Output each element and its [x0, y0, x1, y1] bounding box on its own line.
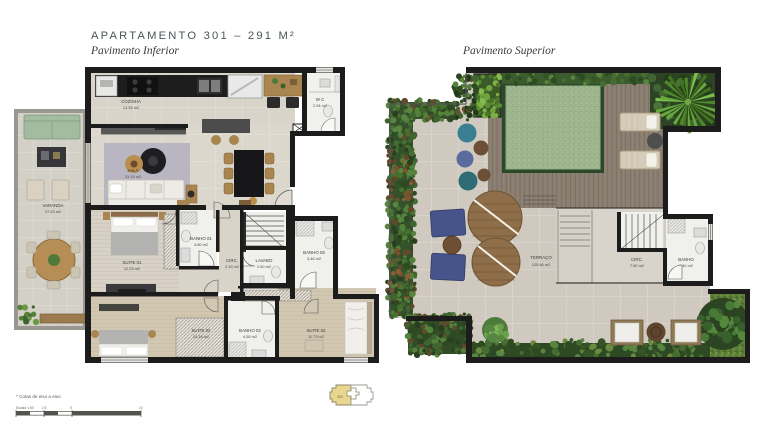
svg-text:2.5: 2.5 [42, 406, 47, 410]
svg-text:LAVABO: LAVABO [256, 258, 274, 263]
svg-text:SUITE 02: SUITE 02 [191, 328, 211, 333]
svg-text:SUITE 01: SUITE 01 [122, 260, 142, 265]
svg-text:12.25 m2: 12.25 m2 [124, 266, 140, 271]
svg-text:Escala 1:50: Escala 1:50 [16, 406, 34, 410]
svg-text:31.19 m2: 31.19 m2 [125, 174, 141, 179]
svg-text:2.60 m2: 2.60 m2 [257, 264, 271, 269]
svg-text:2.43 m2: 2.43 m2 [225, 264, 239, 269]
svg-text:BANHO 02: BANHO 02 [239, 328, 261, 333]
svg-text:2.94 m2: 2.94 m2 [313, 103, 327, 108]
svg-text:14.38 m2: 14.38 m2 [193, 334, 209, 339]
svg-text:125.46 m2: 125.46 m2 [532, 262, 550, 267]
svg-text:VARANDA: VARANDA [43, 203, 64, 208]
svg-text:Pavimento Superior: Pavimento Superior [462, 45, 556, 57]
svg-text:BANHO 01: BANHO 01 [190, 236, 212, 241]
svg-text:SUITE 03: SUITE 03 [306, 328, 326, 333]
svg-text:CIRC.: CIRC. [631, 257, 643, 262]
svg-text:3.80 m2: 3.80 m2 [194, 242, 208, 247]
svg-text:7.80 m2: 7.80 m2 [630, 263, 644, 268]
svg-text:Pavimento Inferior: Pavimento Inferior [90, 45, 179, 57]
svg-text:27.03 m2: 27.03 m2 [45, 209, 61, 214]
svg-text:TERRAÇO: TERRAÇO [530, 255, 552, 260]
svg-text:SALA: SALA [127, 168, 138, 173]
svg-text:13.35 m2: 13.35 m2 [123, 105, 139, 110]
svg-text:3.46 m2: 3.46 m2 [307, 256, 321, 261]
svg-text:11.73 m2: 11.73 m2 [308, 334, 324, 339]
svg-text:APARTAMENTO 301 – 291 M²: APARTAMENTO 301 – 291 M² [91, 30, 296, 42]
svg-text:5: 5 [70, 406, 72, 410]
svg-text:CIRC.: CIRC. [226, 258, 238, 263]
svg-text:W C: W C [316, 97, 325, 102]
svg-text:10: 10 [139, 406, 143, 410]
svg-text:COZINHA: COZINHA [121, 99, 141, 104]
svg-text:BANHO: BANHO [678, 257, 694, 262]
svg-text:4.55 m2: 4.55 m2 [243, 334, 257, 339]
svg-text:301: 301 [337, 395, 343, 399]
svg-text:* Cotas de eixo a eixo: * Cotas de eixo a eixo [16, 394, 61, 399]
svg-text:BANHO 03: BANHO 03 [303, 250, 325, 255]
